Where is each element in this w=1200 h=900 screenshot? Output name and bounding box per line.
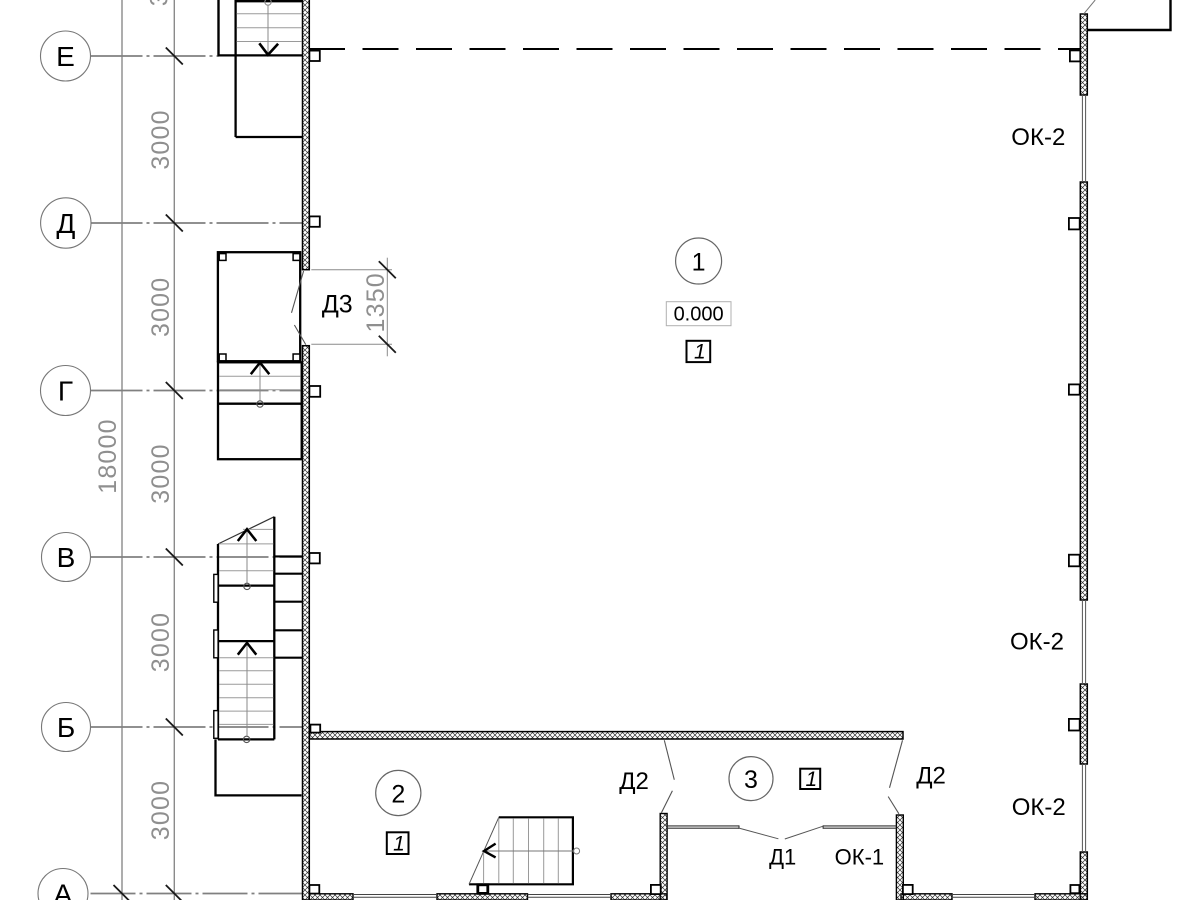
svg-text:ОК-2: ОК-2 (1012, 794, 1066, 821)
svg-text:3000: 3000 (147, 443, 175, 503)
svg-text:1: 1 (393, 832, 405, 855)
svg-text:3000: 3000 (146, 0, 174, 6)
svg-text:0.000: 0.000 (674, 304, 724, 326)
svg-text:Д: Д (56, 208, 75, 239)
svg-text:1: 1 (694, 341, 706, 364)
svg-text:3000: 3000 (147, 612, 175, 672)
svg-text:А: А (54, 879, 73, 900)
svg-text:Б: Б (57, 712, 75, 743)
svg-text:3: 3 (744, 766, 758, 794)
svg-text:1350: 1350 (362, 272, 390, 332)
svg-text:1: 1 (692, 249, 706, 277)
svg-text:ОК-1: ОК-1 (835, 845, 885, 870)
svg-text:Д1: Д1 (769, 845, 796, 870)
svg-text:3000: 3000 (147, 109, 175, 169)
svg-text:1: 1 (806, 768, 818, 791)
svg-text:18000: 18000 (94, 418, 122, 494)
svg-text:2: 2 (391, 781, 405, 809)
svg-text:Д2: Д2 (619, 768, 649, 795)
svg-text:В: В (57, 542, 76, 573)
svg-text:Д2: Д2 (916, 763, 946, 790)
svg-text:ОК-2: ОК-2 (1011, 124, 1065, 151)
svg-text:ОК-2: ОК-2 (1010, 629, 1064, 656)
svg-text:Е: Е (56, 41, 75, 72)
svg-text:Г: Г (58, 376, 73, 407)
svg-text:3000: 3000 (147, 780, 175, 840)
svg-text:Д3: Д3 (322, 291, 353, 319)
svg-text:3000: 3000 (147, 277, 175, 337)
